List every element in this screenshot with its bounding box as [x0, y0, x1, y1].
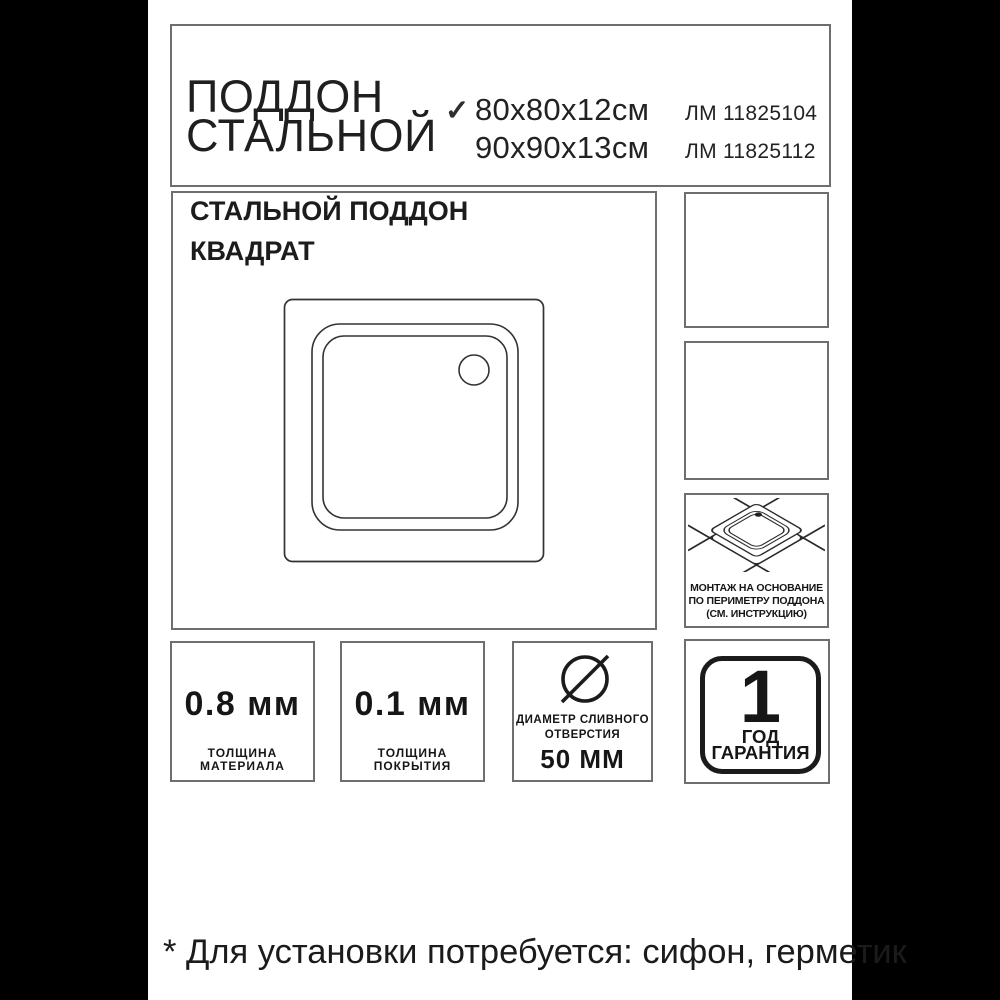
drain-diameter-badge: ДИАМЕТР СЛИВНОГО ОТВЕРСТИЯ 50 ММ — [512, 641, 653, 782]
warranty-frame: 1 ГОД ГАРАНТИЯ — [700, 656, 821, 774]
left-black-bar — [0, 0, 148, 1000]
product-title: ПОДДОН СТАЛЬНОЙ — [186, 77, 437, 155]
diameter-icon — [555, 649, 615, 709]
product-spec-card: ПОДДОН СТАЛЬНОЙ ✓ 80x80x12см ЛМ 11825104… — [0, 0, 1000, 1000]
material-label-line1: ТОЛЩИНА — [172, 747, 313, 760]
drawing-box: СТАЛЬНОЙ ПОДДОН КВАДРАТ — [171, 191, 657, 630]
variant-size: 90x90x13см — [475, 130, 685, 166]
drawing-heading: СТАЛЬНОЙ ПОДДОН КВАДРАТ — [190, 192, 468, 271]
product-title-line2: СТАЛЬНОЙ — [186, 116, 437, 155]
empty-box-2 — [684, 341, 829, 480]
empty-box-1 — [684, 192, 829, 328]
variant-article: ЛМ 11825112 — [685, 140, 816, 164]
drawing-heading-line2: КВАДРАТ — [190, 232, 468, 272]
variant-article: ЛМ 11825104 — [685, 102, 817, 126]
installation-caption-line3: (СМ. ИНСТРУКЦИЮ) — [686, 608, 827, 621]
warranty-label-line2: ГАРАНТИЯ — [711, 745, 809, 761]
header-box: ПОДДОН СТАЛЬНОЙ ✓ 80x80x12см ЛМ 11825104… — [170, 24, 831, 187]
right-black-bar — [852, 0, 1000, 1000]
installation-badge: МОНТАЖ НА ОСНОВАНИЕ ПО ПЕРИМЕТРУ ПОДДОНА… — [684, 493, 829, 628]
drain-diameter-value: 50 ММ — [514, 744, 651, 775]
check-icon: ✓ — [445, 93, 475, 128]
installation-on-base-icon — [688, 498, 825, 572]
installation-caption-line1: МОНТАЖ НА ОСНОВАНИЕ — [686, 582, 827, 595]
drawing-heading-line1: СТАЛЬНОЙ ПОДДОН — [190, 192, 468, 232]
coating-thickness-value: 0.1 мм — [342, 685, 483, 724]
drain-diameter-label: ДИАМЕТР СЛИВНОГО ОТВЕРСТИЯ — [514, 713, 651, 742]
warranty-badge: 1 ГОД ГАРАНТИЯ — [684, 639, 830, 784]
footnote: * Для установки потребуется: сифон, герм… — [163, 933, 907, 972]
variant-list: ✓ 80x80x12см ЛМ 11825104 90x90x13см ЛМ 1… — [445, 92, 817, 167]
warranty-years: 1 — [740, 665, 781, 729]
installation-caption-line2: ПО ПЕРИМЕТРУ ПОДДОНА — [686, 595, 827, 608]
shower-tray-top-view-icon — [283, 298, 545, 563]
coating-thickness-badge: 0.1 мм ТОЛЩИНА ПОКРЫТИЯ — [340, 641, 485, 782]
material-label-line2: МАТЕРИАЛА — [172, 760, 313, 773]
drain-label-line1: ДИАМЕТР СЛИВНОГО — [514, 713, 651, 728]
installation-caption: МОНТАЖ НА ОСНОВАНИЕ ПО ПЕРИМЕТРУ ПОДДОНА… — [686, 582, 827, 621]
variant-row-80: ✓ 80x80x12см ЛМ 11825104 — [445, 92, 817, 130]
material-thickness-badge: 0.8 мм ТОЛЩИНА МАТЕРИАЛА — [170, 641, 315, 782]
variant-size: 80x80x12см — [475, 92, 685, 128]
drain-label-line2: ОТВЕРСТИЯ — [514, 728, 651, 743]
coating-label-line1: ТОЛЩИНА — [342, 747, 483, 760]
coating-thickness-label: ТОЛЩИНА ПОКРЫТИЯ — [342, 747, 483, 772]
material-thickness-label: ТОЛЩИНА МАТЕРИАЛА — [172, 747, 313, 772]
material-thickness-value: 0.8 мм — [172, 685, 313, 724]
coating-label-line2: ПОКРЫТИЯ — [342, 760, 483, 773]
variant-row-90: 90x90x13см ЛМ 11825112 — [445, 130, 817, 168]
